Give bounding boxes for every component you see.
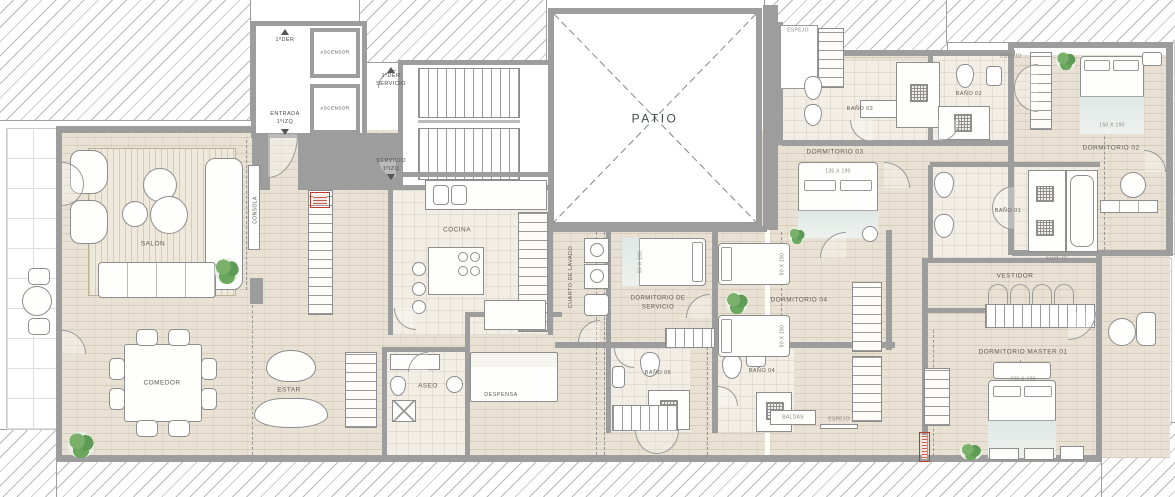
burner — [470, 252, 480, 262]
terrace-chair — [1136, 312, 1156, 346]
wall-cocina-top — [390, 172, 550, 177]
label-consola: CONSOLA — [252, 196, 259, 224]
coffee-table — [150, 196, 188, 234]
label-espejo: ESPEJO — [828, 416, 850, 423]
exterior-hatch-top-right-b — [947, 0, 1175, 42]
terrace-chair — [28, 268, 50, 285]
label-espejo: ESPEJO — [1046, 255, 1068, 262]
direction-arrow-down — [281, 129, 289, 135]
basin — [1036, 186, 1054, 202]
exterior-hatch-top-mid — [360, 0, 546, 62]
hanging-clothes — [1054, 284, 1074, 304]
label-1der: 1ºDER — [276, 37, 295, 45]
terrace-table — [1108, 318, 1136, 346]
stair-mid-rail — [418, 120, 520, 123]
bed-pillow — [1113, 60, 1139, 71]
burner — [458, 266, 468, 276]
bed-pillow — [721, 247, 732, 281]
luggage-rack — [665, 328, 715, 348]
wall-bano03-bottom — [782, 140, 1012, 146]
burner — [470, 266, 480, 276]
hanging-clothes — [1032, 284, 1052, 304]
bed-size-label: 200 X 180 — [1010, 376, 1036, 383]
label-espejo: ESPEJO — [1000, 53, 1022, 60]
room-label-bano-04: BAÑO 04 — [749, 368, 775, 376]
wall-vestidor-top — [928, 258, 1100, 263]
room-label-aseo: ASEO — [418, 381, 438, 390]
room-label-bano-03: BAÑO 03 — [847, 106, 873, 114]
hall-cabinet — [345, 352, 377, 428]
hall-tall-unit — [308, 190, 333, 315]
linen-shelves — [818, 28, 844, 88]
double-vanity — [1028, 170, 1066, 252]
label-ascensor-2: ASCENSOR — [320, 106, 349, 113]
laundry-sink — [584, 294, 609, 316]
armchair — [70, 200, 108, 244]
wall-patio-right-mass — [763, 5, 778, 230]
plant — [726, 292, 748, 314]
room-label-bano-05: BAÑO 05 — [645, 370, 671, 378]
plant — [789, 228, 805, 244]
kitchen-sink — [433, 185, 449, 205]
terrace-chair — [28, 318, 50, 335]
dining-chair — [201, 358, 217, 380]
terrace-table — [22, 286, 52, 316]
room-label-comedor: COMEDOR — [143, 378, 180, 387]
wall-right-outer-lower — [1096, 255, 1102, 462]
wall-aseo-left — [382, 347, 387, 457]
wall-bano01-top — [930, 162, 1100, 167]
wardrobe — [612, 405, 678, 431]
kitchen-sink — [451, 185, 467, 205]
stair-flight-upper — [418, 68, 520, 118]
bench — [1100, 200, 1158, 213]
dining-chair — [168, 420, 190, 437]
bed-size-label: 90 X 190 — [637, 251, 644, 273]
room-label-bano-01: BAÑO 01 — [995, 208, 1021, 216]
dining-chair — [136, 329, 158, 346]
wall-servicio-top — [545, 226, 767, 232]
label-1der-servicio: 1ºDER SERVICIO — [376, 73, 406, 89]
side-table — [1060, 446, 1084, 460]
wall-right-wing-top-b — [1008, 42, 1173, 48]
stool — [412, 262, 426, 276]
washbasin — [986, 66, 1002, 86]
room-label-salon: SALÓN — [141, 239, 165, 248]
bed-pillow — [840, 180, 872, 191]
bed-size-label: 90 X 190 — [779, 253, 786, 275]
label-servicio-1izq: SERVICIO 1ºIZQ — [376, 158, 406, 174]
room-label-vestidor: VESTIDOR — [997, 271, 1034, 280]
kitchen-back-counter — [484, 300, 546, 330]
dining-chair — [201, 388, 217, 410]
direction-arrow-down — [387, 174, 395, 180]
dining-chair — [109, 358, 125, 380]
hanging-clothes — [1010, 284, 1030, 304]
label-espejo: ESPEJO — [787, 27, 809, 34]
wall-cocina-left — [388, 175, 393, 335]
stool — [412, 282, 426, 296]
plant — [215, 258, 239, 284]
bed-pillow — [804, 180, 836, 191]
axis-line — [246, 140, 247, 290]
room-label-bano-02: BAÑO 02 — [956, 91, 982, 99]
exterior-hatch-top-left — [0, 0, 250, 120]
wall-right-outer-upper — [1166, 42, 1173, 255]
axis-line — [252, 295, 253, 455]
room-label-patio: PATIO — [632, 110, 679, 127]
side-table — [122, 201, 148, 227]
wall-top-left-wing — [56, 126, 256, 133]
wall-dorm04-right — [886, 230, 892, 350]
red-label-box — [310, 192, 330, 208]
wardrobe — [852, 282, 882, 352]
bathtub-inner — [1070, 175, 1094, 247]
room-label-dormitorio-master: DORMITORIO MASTER 01 — [978, 347, 1067, 356]
hanging-clothes — [988, 284, 1008, 304]
foot-bench — [1024, 448, 1054, 460]
foot-bench — [989, 448, 1019, 460]
dining-chair — [109, 388, 125, 410]
wardrobe — [924, 368, 950, 426]
washbasin — [446, 376, 463, 393]
bed-size-label: 135 X 190 — [825, 168, 851, 175]
radiator — [250, 278, 263, 304]
plant — [68, 432, 94, 458]
slippers-mat — [1142, 52, 1162, 66]
bed-pillow — [692, 242, 703, 282]
label-baldas: BALDAS — [782, 414, 804, 421]
room-label-despensa: DESPENSA — [484, 392, 518, 400]
mirror — [820, 424, 858, 429]
label-ascensor-1: ASCENSOR — [320, 50, 349, 57]
dryer-drum — [590, 269, 604, 283]
bed-pillow — [1024, 386, 1052, 397]
chair — [1120, 172, 1146, 198]
wall-cocina-right — [548, 175, 553, 335]
bed-size-label: 150 X 190 — [1099, 122, 1125, 129]
lounge-seat — [266, 350, 316, 382]
washbasin — [612, 366, 625, 388]
bed-pillow — [993, 386, 1021, 397]
room-label-dormitorio-02: DORMITORIO 02 — [1082, 143, 1139, 152]
lounge-seat — [254, 398, 328, 428]
room-label-estar: ESTAR — [277, 385, 300, 394]
red-label-box — [919, 432, 930, 462]
room-label-dormitorio-03: DORMITORIO 03 — [806, 147, 863, 156]
exterior-hatch-bottom — [56, 462, 1175, 497]
room-label-dormitorio-servicio: DORMITORIO DE SERVICIO — [631, 294, 686, 311]
room-label-cuarto-lavado: CUARTO DE LAVADO — [568, 246, 576, 308]
dining-chair — [136, 420, 158, 437]
bed-pillow — [721, 319, 732, 353]
bed-pillow — [1084, 60, 1110, 71]
direction-arrow-up — [281, 29, 289, 35]
room-label-cocina: COCINA — [443, 225, 471, 234]
basin — [1036, 220, 1054, 236]
dining-chair — [168, 329, 190, 346]
burner — [458, 252, 468, 262]
plant — [960, 444, 982, 460]
shower-drain — [910, 84, 928, 102]
plant — [1056, 52, 1076, 70]
pouf — [862, 226, 878, 242]
axis-line — [707, 347, 708, 455]
exterior-hatch-bottom-left — [0, 430, 56, 497]
shower-box — [392, 400, 416, 422]
label-entrada: ENTRADA 1ºIZQ — [270, 111, 299, 127]
bed-size-label: 90 X 190 — [779, 325, 786, 347]
room-label-dormitorio-04: DORMITORIO 04 — [770, 295, 827, 304]
floor-plan: PATIO SALÓN COMEDOR ESTAR CONSOLA ASEO D… — [0, 0, 1175, 497]
wall-bano01-left — [928, 165, 933, 260]
washer-drum — [590, 243, 604, 257]
wall-bottom — [56, 455, 1102, 462]
wardrobe — [852, 356, 882, 422]
sofa — [98, 262, 216, 298]
